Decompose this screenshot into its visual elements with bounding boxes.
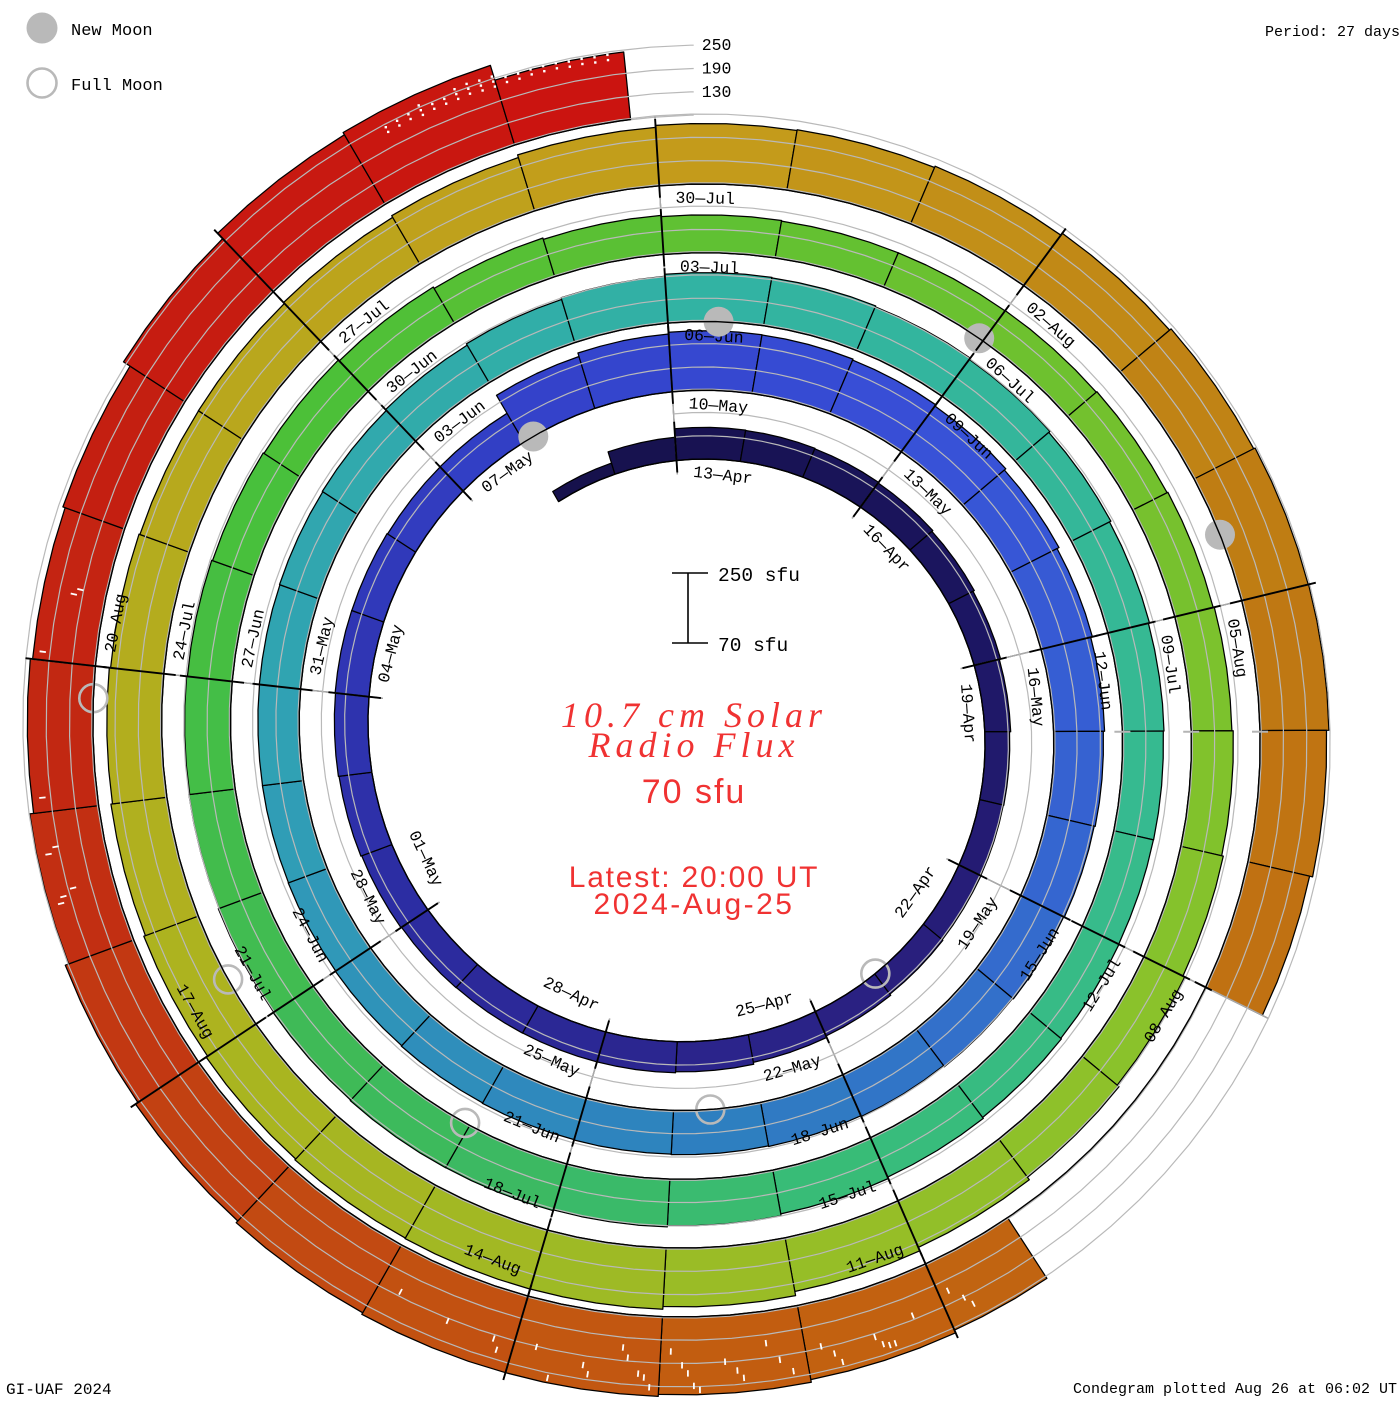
- svg-text:30—Jul: 30—Jul: [675, 189, 735, 209]
- svg-text:130: 130: [702, 83, 732, 102]
- svg-text:Period: 27 days: Period: 27 days: [1265, 24, 1400, 41]
- svg-text:2024-Aug-25: 2024-Aug-25: [594, 888, 795, 921]
- svg-text:GI-UAF 2024: GI-UAF 2024: [6, 1381, 112, 1399]
- svg-text:Condegram plotted Aug 26 at 06: Condegram plotted Aug 26 at 06:02 UT: [1073, 1381, 1397, 1398]
- svg-text:Radio Flux: Radio Flux: [588, 725, 800, 765]
- svg-text:250 sfu: 250 sfu: [718, 565, 800, 587]
- svg-text:03—Jul: 03—Jul: [680, 257, 740, 278]
- svg-text:250: 250: [702, 36, 732, 55]
- svg-text:70 sfu: 70 sfu: [642, 773, 747, 811]
- svg-text:Full Moon: Full Moon: [71, 77, 163, 96]
- svg-text:New Moon: New Moon: [71, 22, 153, 41]
- svg-text:70 sfu: 70 sfu: [718, 635, 788, 657]
- svg-text:190: 190: [702, 60, 732, 79]
